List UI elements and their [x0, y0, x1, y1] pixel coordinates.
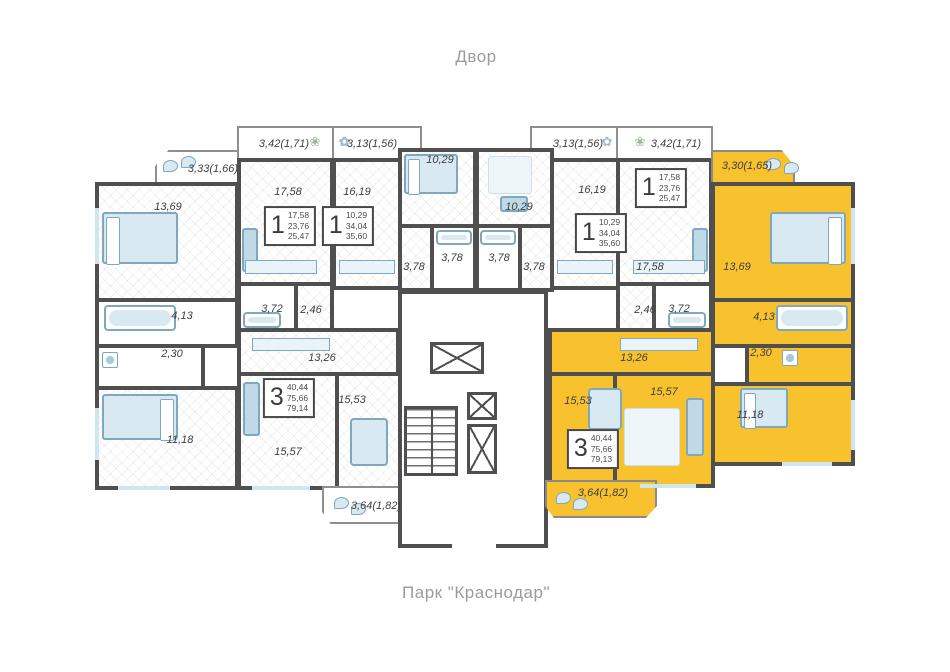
washer-icon — [782, 350, 798, 366]
area-label: 10,29 — [426, 154, 454, 166]
area-label: 15,57 — [274, 446, 302, 458]
bed-furniture — [740, 388, 788, 428]
flower-icon: ✿ — [602, 134, 613, 150]
dining-table-furniture — [350, 418, 388, 466]
room-count: 1 — [582, 221, 596, 246]
bed-furniture — [770, 212, 846, 264]
window — [252, 486, 310, 490]
area-label: 3,78 — [403, 261, 424, 273]
area-label: 11,18 — [737, 409, 764, 421]
entrance-opening — [452, 540, 496, 548]
kitchen-counter-furniture — [557, 260, 613, 274]
apartment-badge: 3 40,4475,6679,14 — [263, 378, 315, 418]
area-label: 3,72 — [668, 303, 689, 315]
plant-icon — [573, 498, 588, 510]
area-label: 15,57 — [650, 386, 678, 398]
bed-furniture — [102, 212, 178, 264]
kitchen-counter-furniture — [245, 260, 317, 274]
bathtub-furniture — [480, 230, 516, 245]
room-count: 1 — [271, 214, 285, 239]
area-label: 3,72 — [261, 303, 282, 315]
area-label: 3,33(1,66) — [188, 163, 238, 175]
area-label: 3,78 — [441, 252, 462, 264]
floor-plan-page: Двор Парк "Краснодар" 3,33(1,66) 13,69 4… — [0, 0, 950, 672]
area-label: 3,13(1,56) — [553, 138, 603, 150]
area-label: 17,58 — [274, 186, 302, 198]
apartment-badge: 1 17,5823,7625,47 — [264, 206, 316, 246]
window — [118, 486, 170, 490]
bathtub-furniture — [436, 230, 472, 245]
area-label: 3,30(1,65) — [722, 160, 772, 172]
flower-icon: ❀ — [635, 134, 646, 150]
area-label: 2,46 — [300, 304, 321, 316]
plant-icon — [163, 160, 178, 172]
apartment-badge: 1 10,2934,0435,60 — [322, 206, 374, 246]
area-label: 2,30 — [161, 348, 182, 360]
area-label: 3,13(1,56) — [347, 138, 397, 150]
area-label: 16,19 — [343, 186, 371, 198]
area-label: 4,13 — [171, 310, 192, 322]
area-label: 3,42(1,71) — [259, 138, 309, 150]
area-label: 3,42(1,71) — [651, 138, 701, 150]
apartment-3room-right-highlighted[interactable]: 3,30(1,65) 13,69 4,13 2,30 11,18 15,57 1… — [0, 0, 950, 672]
staircase — [404, 406, 458, 476]
room-count: 1 — [642, 176, 656, 201]
sofa-furniture — [243, 382, 260, 436]
area-label: 3,64(1,82) — [578, 487, 628, 499]
area-label: 16,19 — [578, 184, 606, 196]
elevator-icon — [430, 342, 484, 374]
kitchen-counter-furniture — [339, 260, 395, 274]
apartment-badge: 3 40,4475,6679,13 — [567, 429, 619, 469]
elevator-icon — [467, 392, 497, 420]
apartment-badge: 1 17,5823,7625,47 — [635, 168, 687, 208]
window — [640, 484, 696, 488]
plant-icon — [784, 162, 799, 174]
window — [95, 408, 99, 460]
rug-furniture — [488, 156, 532, 194]
flower-icon: ❀ — [310, 134, 321, 150]
apartment-badge: 1 10,2934,0435,60 — [575, 213, 627, 253]
kitchen-counter-furniture — [252, 338, 330, 351]
area-label: 4,13 — [753, 311, 774, 323]
washer-icon — [102, 352, 118, 368]
area-label: 3,78 — [523, 261, 544, 273]
room-count: 3 — [270, 386, 284, 411]
bathtub-furniture — [776, 305, 848, 331]
kitchen-counter-furniture — [620, 338, 698, 351]
area-label: 10,29 — [505, 201, 533, 213]
window — [851, 208, 855, 264]
bathtub-furniture — [104, 305, 176, 331]
area-label: 17,58 — [636, 261, 664, 273]
dining-table-furniture — [588, 388, 622, 430]
area-label: 3,78 — [488, 252, 509, 264]
room-count: 3 — [574, 437, 588, 462]
area-label: 13,26 — [620, 352, 648, 364]
area-label: 13,69 — [723, 261, 751, 273]
room-count: 1 — [329, 214, 343, 239]
area-label: 13,69 — [154, 201, 182, 213]
area-label: 11,18 — [167, 434, 194, 446]
area-label: 3,64(1,82) — [351, 500, 401, 512]
sofa-furniture — [686, 398, 704, 456]
plant-icon — [334, 497, 349, 509]
window — [851, 400, 855, 450]
area-label: 15,53 — [338, 394, 366, 406]
window — [95, 208, 99, 264]
elevator-icon — [467, 424, 497, 474]
area-label: 13,26 — [308, 352, 336, 364]
rug-furniture — [624, 408, 680, 466]
plant-icon — [556, 492, 571, 504]
area-label: 15,53 — [564, 395, 592, 407]
area-label: 2,46 — [634, 304, 655, 316]
window — [782, 462, 832, 466]
area-label: 2,30 — [750, 347, 771, 359]
